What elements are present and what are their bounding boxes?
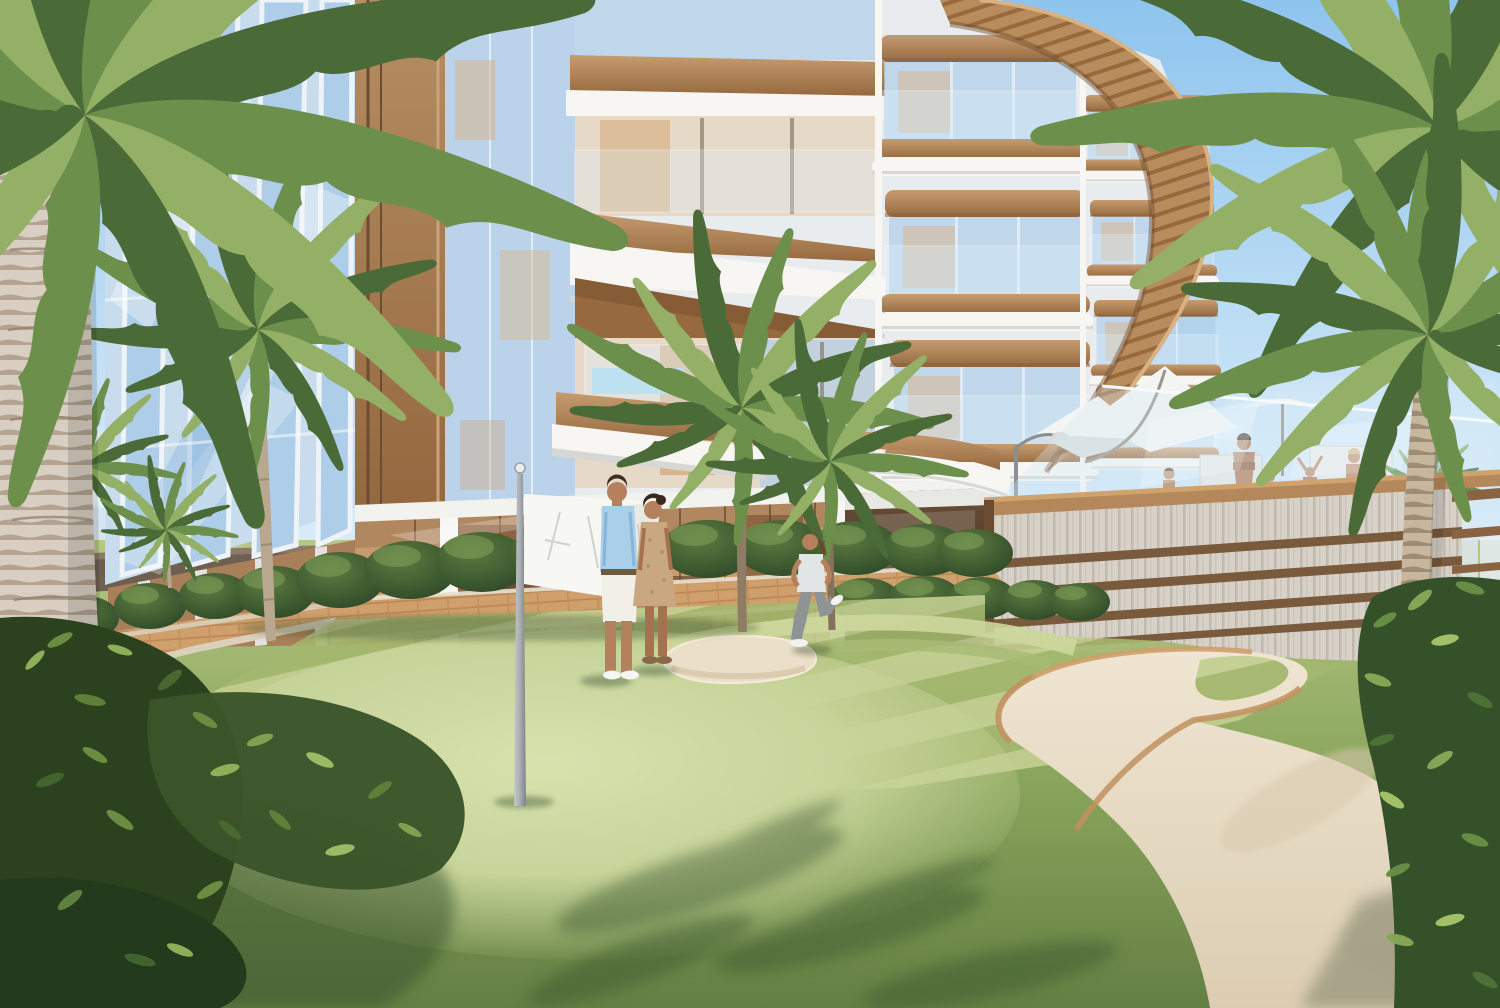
architectural-render-image: 3D architectural rendering: luxury low-r… — [0, 0, 1500, 1008]
render-canvas: 3D architectural rendering: luxury low-r… — [0, 0, 1500, 1008]
